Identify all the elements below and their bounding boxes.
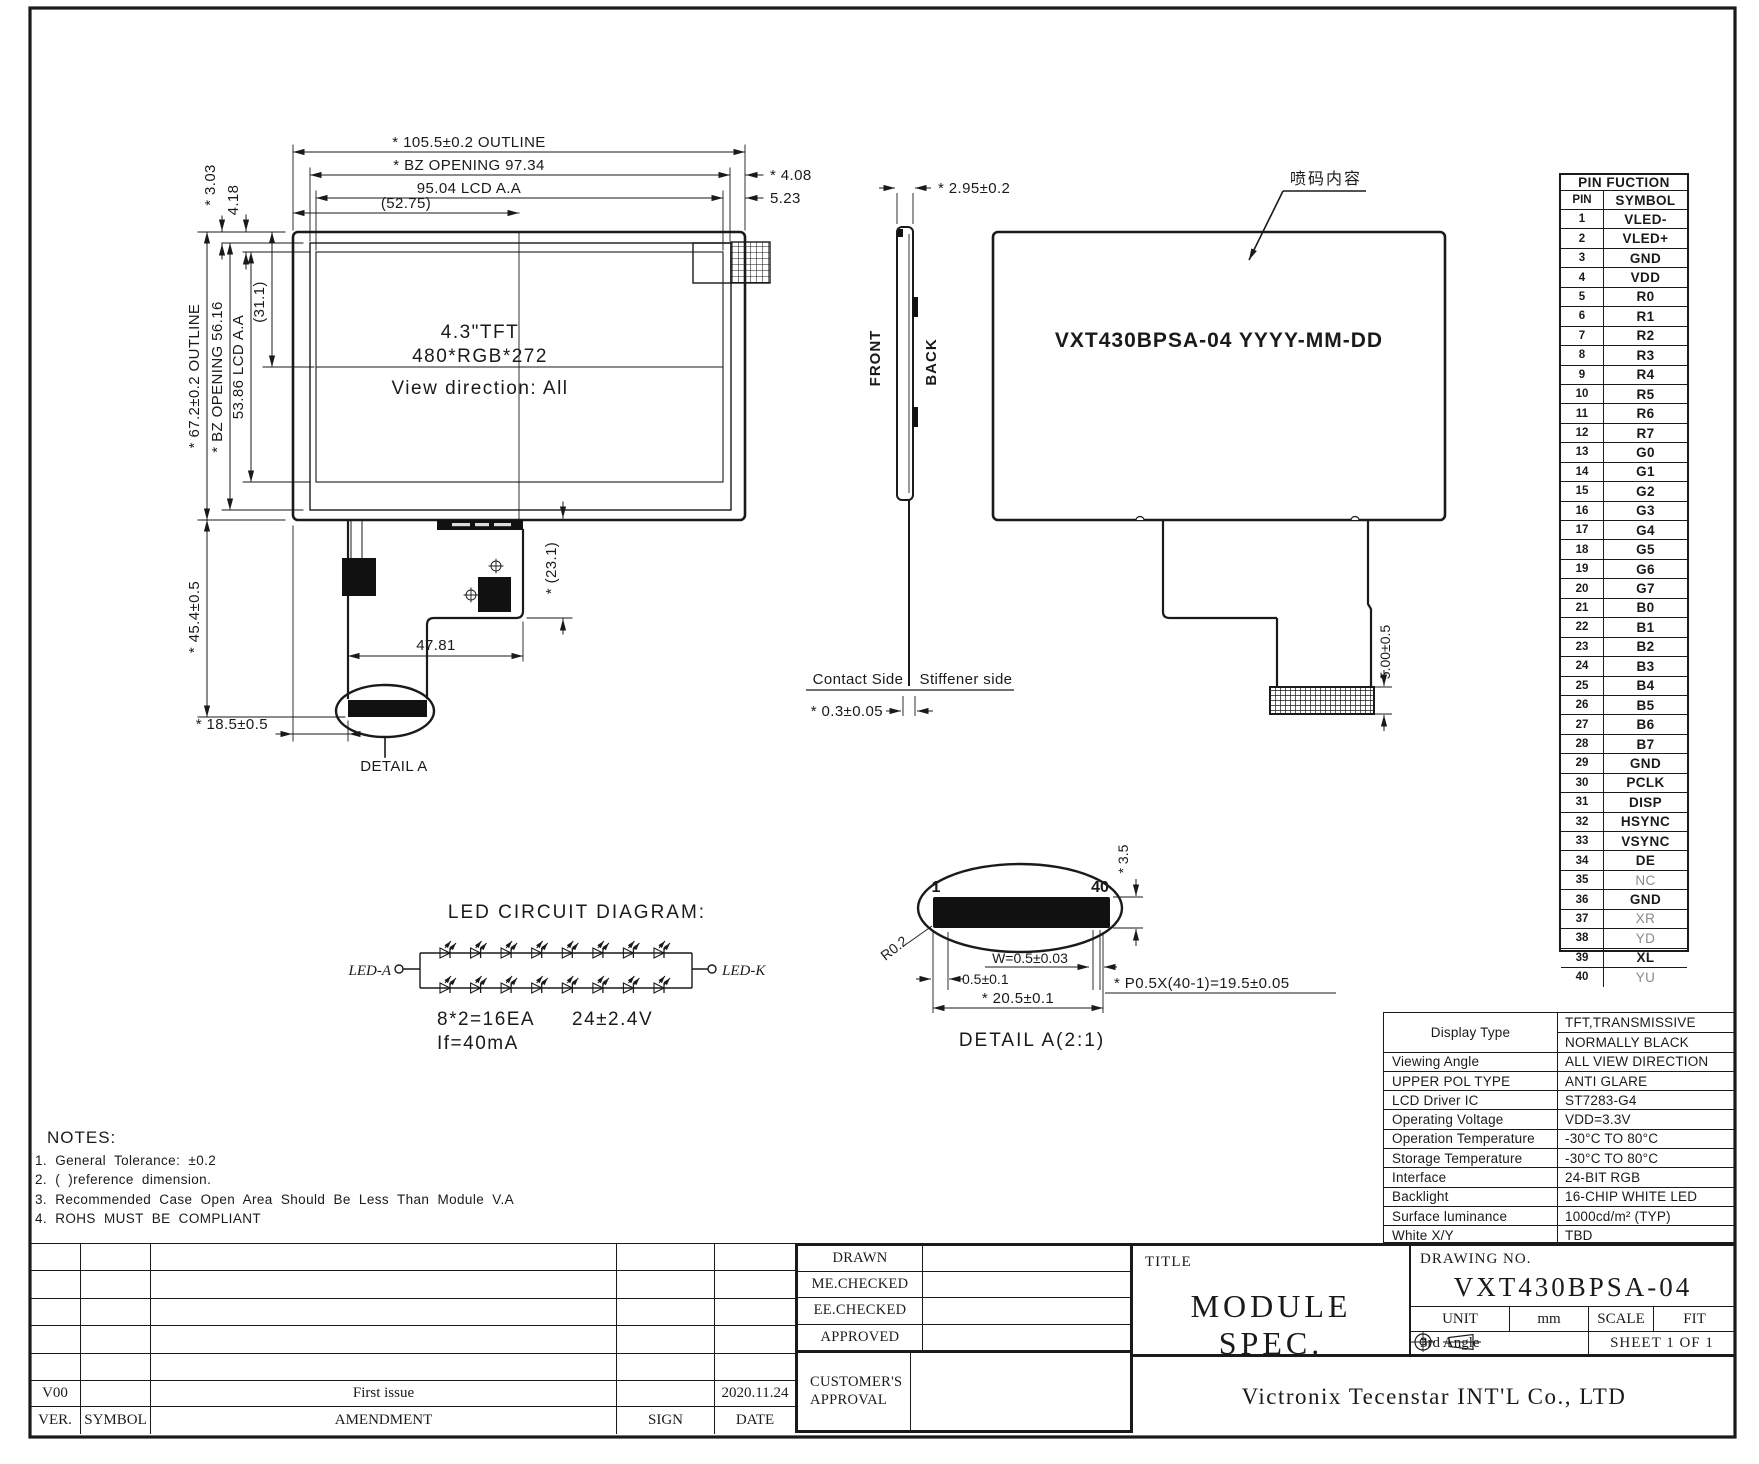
- company-name: Victronix Tecenstar INT'L Co., LTD: [1133, 1354, 1735, 1436]
- spec-values: 1000cd/m² (TYP): [1558, 1207, 1734, 1225]
- pin-row: 9R4: [1561, 366, 1687, 385]
- scale-label: SCALE: [1589, 1307, 1654, 1331]
- pin-row: 18G5: [1561, 540, 1687, 559]
- pin-row: 21B0: [1561, 599, 1687, 618]
- pin-row: 1VLED-: [1561, 210, 1687, 229]
- pin-row: 24B3: [1561, 657, 1687, 676]
- spec-value: ALL VIEW DIRECTION: [1558, 1053, 1734, 1071]
- pin-row: 6R1: [1561, 307, 1687, 326]
- corner-hatch-block: [731, 242, 770, 283]
- laser-marking-text: VXT430BPSA-04 YYYY-MM-DD: [1055, 329, 1383, 352]
- symbol-col-header: SYMBOL: [1604, 191, 1687, 209]
- notes-title: NOTES:: [47, 1128, 595, 1148]
- pin-number: 3: [1561, 249, 1604, 267]
- approval-row: DRAWN: [798, 1246, 1130, 1272]
- fpc-component-2: [478, 577, 511, 612]
- dim-right-523: 5.23: [770, 190, 801, 207]
- pin-number: 35: [1561, 871, 1604, 889]
- third-angle-projection-icon: [1411, 1332, 1483, 1352]
- pin-symbol: DISP: [1604, 793, 1687, 811]
- spec-values: 16-CHIP WHITE LED: [1558, 1188, 1734, 1206]
- projection-row: 3rd Angle SHEET 1 OF 1: [1409, 1332, 1735, 1354]
- dim-thickness: * 2.95±0.2: [938, 180, 1010, 197]
- rev-empty-row: [30, 1354, 795, 1381]
- rev-empty-row: [30, 1326, 795, 1353]
- pin-row: 11R6: [1561, 404, 1687, 423]
- pin-number: 16: [1561, 502, 1604, 520]
- pin-number: 39: [1561, 949, 1604, 967]
- pin-row: 3GND: [1561, 249, 1687, 268]
- dim-detail-total: * 20.5±0.1: [982, 990, 1054, 1007]
- spec-label: LCD Driver IC: [1384, 1091, 1558, 1109]
- pin-row: 26B5: [1561, 696, 1687, 715]
- marking-callout-label: 喷码内容: [1290, 170, 1362, 188]
- rev-cell: [81, 1244, 151, 1270]
- spec-values: ANTI GLARE: [1558, 1072, 1734, 1090]
- dim-fpc-height: * (23.1): [543, 542, 560, 594]
- pin-symbol: R2: [1604, 327, 1687, 345]
- notes: NOTES: 1. General Tolerance: ±0.22. ( )r…: [35, 1128, 595, 1226]
- side-bump-2: [912, 407, 918, 427]
- dim-top-418: 4.18: [225, 185, 242, 216]
- rev-cell: [617, 1381, 715, 1407]
- customer-approval-row: CUSTOMER'S APPROVAL: [798, 1351, 1130, 1430]
- pin-number: 21: [1561, 599, 1604, 617]
- spec-label: Viewing Angle: [1384, 1053, 1558, 1071]
- pin-symbol: G0: [1604, 443, 1687, 461]
- dim-center-offset: (52.75): [381, 195, 431, 212]
- approval-signature: [923, 1298, 1130, 1323]
- rev-header-row: VER.SYMBOLAMENDMENTSIGNDATE: [30, 1407, 795, 1434]
- pin-row: 23B2: [1561, 638, 1687, 657]
- pin-symbol: B2: [1604, 638, 1687, 656]
- projection-angle-cell: 3rd Angle: [1411, 1332, 1589, 1354]
- approval-signature: [923, 1325, 1130, 1350]
- pin-row: 2VLED+: [1561, 229, 1687, 248]
- spec-row: Viewing AngleALL VIEW DIRECTION: [1384, 1052, 1734, 1071]
- corner-window: [693, 243, 731, 283]
- spec-value: ANTI GLARE: [1558, 1072, 1734, 1090]
- spec-label: Operation Temperature: [1384, 1130, 1558, 1148]
- spec-row: Storage Temperature-30°C TO 80°C: [1384, 1148, 1734, 1167]
- fpc-component-1: [342, 558, 376, 596]
- pin-row: 5R0: [1561, 288, 1687, 307]
- led-circuit-title: LED CIRCUIT DIAGRAM:: [448, 902, 706, 923]
- pin-table-header: PIN SYMBOL: [1561, 191, 1687, 210]
- pin-row: 22B1: [1561, 618, 1687, 637]
- pin-number: 23: [1561, 638, 1604, 656]
- pin-number: 20: [1561, 579, 1604, 597]
- spec-row: LCD Driver ICST7283-G4: [1384, 1090, 1734, 1109]
- spec-label: White X/Y: [1384, 1226, 1558, 1244]
- front-view: 4.3"TFT 480*RGB*272 View direction: All …: [186, 134, 812, 775]
- spec-row: Operation Temperature-30°C TO 80°C: [1384, 1129, 1734, 1148]
- spec-value: VDD=3.3V: [1558, 1110, 1734, 1128]
- pin-row: 16G3: [1561, 502, 1687, 521]
- led-quantity-label: 8*2=16EA: [437, 1009, 535, 1030]
- pin-row: 40YU: [1561, 968, 1687, 986]
- pin-symbol: R5: [1604, 385, 1687, 403]
- pin-number: 7: [1561, 327, 1604, 345]
- title-cell: TITLE MODULE SPEC.: [1133, 1246, 1409, 1354]
- pin-symbol: G1: [1604, 463, 1687, 481]
- dim-detail-pad: 0.5±0.1: [962, 971, 1009, 987]
- side-profile: [897, 227, 913, 500]
- rev-cell: [715, 1299, 795, 1325]
- note-item: 4. ROHS MUST BE COMPLIANT: [35, 1211, 595, 1226]
- pin-row: 19G6: [1561, 560, 1687, 579]
- dim-bz-height: * BZ OPENING 56.16: [209, 301, 226, 452]
- pin-number: 18: [1561, 540, 1604, 558]
- spec-label: Surface luminance: [1384, 1207, 1558, 1225]
- rev-cell: [81, 1326, 151, 1352]
- pin-row: 38YD: [1561, 929, 1687, 948]
- rev-cell: [715, 1244, 795, 1270]
- contact-side-label: Contact Side: [813, 671, 904, 688]
- unit-scale-row: UNIT mm SCALE FIT: [1409, 1307, 1735, 1332]
- rev-cell: 2020.11.24: [715, 1381, 795, 1407]
- approval-label: DRAWN: [798, 1246, 923, 1271]
- pin-number: 34: [1561, 851, 1604, 869]
- pin-number: 8: [1561, 346, 1604, 364]
- pin-symbol: R0: [1604, 288, 1687, 306]
- rev-cell: SYMBOL: [81, 1407, 151, 1434]
- sheet-label: SHEET 1 OF 1: [1589, 1332, 1735, 1354]
- detail-a-view: 1 40 * 3.5 R0.2 W=0.5±0.03 0.5±0.1 * 20.…: [877, 844, 1336, 1051]
- rev-cell: [151, 1244, 617, 1270]
- pin-symbol: VSYNC: [1604, 832, 1687, 850]
- pin-row: 15G2: [1561, 482, 1687, 501]
- led-voltage-label: 24±2.4V: [572, 1009, 653, 1030]
- dim-bz-width: * BZ OPENING 97.34: [393, 157, 544, 174]
- pin-number: 28: [1561, 735, 1604, 753]
- pin-number: 40: [1561, 968, 1604, 986]
- rev-cell: [81, 1381, 151, 1407]
- pin-row: 12R7: [1561, 424, 1687, 443]
- pin-symbol: R6: [1604, 404, 1687, 422]
- pin-row: 10R5: [1561, 385, 1687, 404]
- pin-symbol: NC: [1604, 871, 1687, 889]
- approval-label: ME.CHECKED: [798, 1272, 923, 1297]
- pin-number: 33: [1561, 832, 1604, 850]
- spec-values: VDD=3.3V: [1558, 1110, 1734, 1128]
- pin-symbol: B5: [1604, 696, 1687, 714]
- pin-number: 5: [1561, 288, 1604, 306]
- dim-fpc-length: * 45.4±0.5: [186, 581, 203, 653]
- pin-row: 29GND: [1561, 754, 1687, 773]
- led-circuit-diagram: LED CIRCUIT DIAGRAM: LED-A LED-K 8*2=16E…: [348, 902, 767, 1054]
- front-side-label: FRONT: [867, 330, 884, 387]
- drawing-no-label: DRAWING NO.: [1420, 1251, 1531, 1268]
- led-anode-label: LED-A: [348, 963, 392, 979]
- spec-row: Display TypeTFT,TRANSMISSIVENORMALLY BLA…: [1384, 1013, 1734, 1052]
- pin-row: 25B4: [1561, 677, 1687, 696]
- dim-fpc-thickness: * 0.3±0.05: [811, 703, 883, 720]
- fpc-contact-bar: [348, 700, 427, 717]
- approval-label: EE.CHECKED: [798, 1298, 923, 1323]
- rev-data-row: V00First issue2020.11.24: [30, 1381, 795, 1408]
- stiffener-side-label: Stiffener side: [920, 671, 1013, 688]
- pin-symbol: R7: [1604, 424, 1687, 442]
- pin-symbol: G5: [1604, 540, 1687, 558]
- spec-label: UPPER POL TYPE: [1384, 1072, 1558, 1090]
- rev-cell: [715, 1271, 795, 1297]
- spec-value: 16-CHIP WHITE LED: [1558, 1188, 1734, 1206]
- spec-values: ST7283-G4: [1558, 1091, 1734, 1109]
- pin-number: 37: [1561, 910, 1604, 928]
- pin-number: 1: [1561, 210, 1604, 228]
- revision-table: V00First issue2020.11.24VER.SYMBOLAMENDM…: [30, 1243, 795, 1434]
- title-block-right: TITLE MODULE SPEC. DRAWING NO. VXT430BPS…: [1133, 1243, 1735, 1433]
- pin-row: 35NC: [1561, 871, 1687, 890]
- side-view: * 2.95±0.2 FRONT BACK Contact Side Stiff…: [806, 180, 1014, 720]
- pin-number: 4: [1561, 268, 1604, 286]
- note-item: 2. ( )reference dimension.: [35, 1172, 595, 1187]
- pin-row: 4VDD: [1561, 268, 1687, 287]
- spec-values: -30°C TO 80°C: [1558, 1130, 1734, 1148]
- pin-row: 37XR: [1561, 910, 1687, 929]
- pin-symbol: GND: [1604, 890, 1687, 908]
- customer-approval-signature: [911, 1353, 1130, 1430]
- rev-cell: [617, 1354, 715, 1380]
- spec-label: Display Type: [1384, 1013, 1558, 1052]
- pin-number: 24: [1561, 657, 1604, 675]
- pin-symbol: VDD: [1604, 268, 1687, 286]
- pin-number: 31: [1561, 793, 1604, 811]
- pin-row: 31DISP: [1561, 793, 1687, 812]
- pin-symbol: B4: [1604, 677, 1687, 695]
- dim-aa-height: 53.86 LCD A.A: [230, 315, 247, 419]
- rev-cell: [617, 1326, 715, 1352]
- spec-label: Operating Voltage: [1384, 1110, 1558, 1128]
- pin-row: 7R2: [1561, 327, 1687, 346]
- rev-cell: DATE: [715, 1407, 795, 1434]
- pin-col-header: PIN: [1561, 191, 1604, 209]
- spec-values: TBD: [1558, 1226, 1734, 1244]
- dim-detail-pitch: * P0.5X(40-1)=19.5±0.05: [1114, 975, 1289, 992]
- pin-number: 11: [1561, 404, 1604, 422]
- pin-function-table: PIN FUCTION PIN SYMBOL 1VLED-2VLED+3GND4…: [1559, 173, 1689, 952]
- pin-rows: 1VLED-2VLED+3GND4VDD5R06R17R28R39R410R51…: [1561, 210, 1687, 987]
- approval-block: DRAWNME.CHECKEDEE.CHECKEDAPPROVED CUSTOM…: [795, 1243, 1133, 1433]
- pin-symbol: YU: [1604, 968, 1687, 986]
- dim-outline-height: * 67.2±0.2 OUTLINE: [186, 304, 203, 449]
- pin-row: 39XL: [1561, 949, 1687, 968]
- spec-row: Operating VoltageVDD=3.3V: [1384, 1109, 1734, 1128]
- pin-symbol: G6: [1604, 560, 1687, 578]
- back-connector-stiffener: [1270, 687, 1374, 714]
- pin-number: 9: [1561, 366, 1604, 384]
- title-label: TITLE: [1145, 1254, 1192, 1271]
- notes-lines: 1. General Tolerance: ±0.22. ( )referenc…: [35, 1153, 595, 1227]
- rev-cell: AMENDMENT: [151, 1407, 617, 1434]
- unit-label: UNIT: [1411, 1307, 1510, 1331]
- dim-connector-height: 5.00±0.5: [1377, 625, 1393, 680]
- rev-cell: [617, 1244, 715, 1270]
- pin-row: 34DE: [1561, 851, 1687, 870]
- note-item: 1. General Tolerance: ±0.2: [35, 1153, 595, 1168]
- rev-cell: [81, 1271, 151, 1297]
- detail-contact-bar: [933, 897, 1110, 928]
- pin-row: 32HSYNC: [1561, 813, 1687, 832]
- pin-number: 10: [1561, 385, 1604, 403]
- pin-number: 2: [1561, 229, 1604, 247]
- engineering-drawing-sheet: 4.3"TFT 480*RGB*272 View direction: All …: [0, 0, 1759, 1464]
- rev-cell: [617, 1271, 715, 1297]
- approval-label: APPROVED: [798, 1325, 923, 1350]
- approval-signature: [923, 1272, 1130, 1297]
- rev-cell: [151, 1326, 617, 1352]
- rev-cell: [617, 1299, 715, 1325]
- rev-cell: [715, 1326, 795, 1352]
- rev-cell: [151, 1354, 617, 1380]
- pin-symbol: XR: [1604, 910, 1687, 928]
- rev-cell: [81, 1354, 151, 1380]
- pin-symbol: G4: [1604, 521, 1687, 539]
- spec-label: Interface: [1384, 1168, 1558, 1186]
- pin-number: 32: [1561, 813, 1604, 831]
- spec-values: TFT,TRANSMISSIVENORMALLY BLACK: [1558, 1013, 1734, 1052]
- pin-number: 17: [1561, 521, 1604, 539]
- pin-symbol: PCLK: [1604, 774, 1687, 792]
- unit-value: mm: [1510, 1307, 1589, 1331]
- pin-symbol: B7: [1604, 735, 1687, 753]
- pin-number: 38: [1561, 929, 1604, 947]
- title-block: V00First issue2020.11.24VER.SYMBOLAMENDM…: [30, 1243, 1735, 1434]
- bezel-opening: [310, 243, 731, 510]
- rev-cell: VER.: [30, 1407, 81, 1434]
- pin-symbol: XL: [1604, 949, 1687, 967]
- dim-aa-width: 95.04 LCD A.A: [417, 180, 521, 197]
- pin-symbol: G7: [1604, 579, 1687, 597]
- back-outline: [993, 232, 1445, 520]
- pin-symbol: YD: [1604, 929, 1687, 947]
- detail-a-title: DETAIL A(2:1): [959, 1030, 1105, 1051]
- pin-symbol: R4: [1604, 366, 1687, 384]
- back-view: VXT430BPSA-04 YYYY-MM-DD 喷码内容 5.00±0.5: [993, 170, 1445, 731]
- view-direction-label: View direction: All: [391, 378, 568, 399]
- pin-symbol: R3: [1604, 346, 1687, 364]
- rev-empty-row: [30, 1244, 795, 1271]
- detail-radius-label: R0.2: [877, 933, 910, 964]
- pin-symbol: G2: [1604, 482, 1687, 500]
- spec-value: 24-BIT RGB: [1558, 1168, 1734, 1186]
- dim-detail-height: * 3.5: [1115, 844, 1131, 873]
- pin-symbol: GND: [1604, 249, 1687, 267]
- pin-symbol: G3: [1604, 502, 1687, 520]
- spec-row: Backlight16-CHIP WHITE LED: [1384, 1187, 1734, 1206]
- pin-symbol: HSYNC: [1604, 813, 1687, 831]
- pin-number: 19: [1561, 560, 1604, 578]
- spec-row: UPPER POL TYPEANTI GLARE: [1384, 1071, 1734, 1090]
- dim-center-v: (31.1): [251, 281, 268, 323]
- pin-row: 13G0: [1561, 443, 1687, 462]
- dim-top-303: * 3.03: [202, 164, 219, 206]
- drawing-no-cell: DRAWING NO. VXT430BPSA-04: [1409, 1246, 1735, 1307]
- panel-resolution-label: 480*RGB*272: [412, 346, 548, 367]
- spec-value: TBD: [1558, 1226, 1734, 1244]
- detail-pin1-label: 1: [932, 879, 941, 896]
- pin-symbol: DE: [1604, 851, 1687, 869]
- pin-row: 20G7: [1561, 579, 1687, 598]
- spec-value: NORMALLY BLACK: [1558, 1032, 1734, 1052]
- detail-pin40-label: 40: [1091, 879, 1109, 896]
- pin-row: 8R3: [1561, 346, 1687, 365]
- approval-row: ME.CHECKED: [798, 1272, 1130, 1298]
- spec-values: 24-BIT RGB: [1558, 1168, 1734, 1186]
- pin-row: 27B6: [1561, 715, 1687, 734]
- approval-row: EE.CHECKED: [798, 1298, 1130, 1324]
- pin-number: 36: [1561, 890, 1604, 908]
- pin-symbol: VLED+: [1604, 229, 1687, 247]
- pin-symbol: B3: [1604, 657, 1687, 675]
- detail-a-label: DETAIL A: [360, 758, 427, 775]
- side-bump-1: [912, 297, 918, 317]
- spec-value: -30°C TO 80°C: [1558, 1130, 1734, 1148]
- rev-cell: [30, 1244, 81, 1270]
- dim-fpc-offset: * 18.5±0.5: [196, 716, 268, 733]
- panel-size-label: 4.3"TFT: [441, 322, 519, 343]
- rev-cell: [151, 1299, 617, 1325]
- pin-row: 36GND: [1561, 890, 1687, 909]
- pin-number: 29: [1561, 754, 1604, 772]
- pin-symbol: GND: [1604, 754, 1687, 772]
- led-current-label: If=40mA: [437, 1033, 519, 1054]
- fit-value: FIT: [1654, 1307, 1735, 1331]
- rev-cell: V00: [30, 1381, 81, 1407]
- pin-number: 25: [1561, 677, 1604, 695]
- pin-row: 14G1: [1561, 463, 1687, 482]
- pin-number: 22: [1561, 618, 1604, 636]
- rev-cell: SIGN: [617, 1407, 715, 1434]
- pin-symbol: VLED-: [1604, 210, 1687, 228]
- callout-leader: [1249, 191, 1283, 260]
- rev-cell: First issue: [151, 1381, 617, 1407]
- rev-cell: [30, 1299, 81, 1325]
- spec-values: ALL VIEW DIRECTION: [1558, 1053, 1734, 1071]
- spec-label: Backlight: [1384, 1188, 1558, 1206]
- pin-symbol: B1: [1604, 618, 1687, 636]
- rev-cell: [30, 1271, 81, 1297]
- dim-outline-width: * 105.5±0.2 OUTLINE: [392, 134, 545, 151]
- pin-number: 14: [1561, 463, 1604, 481]
- led-cathode-label: LED-K: [721, 963, 766, 979]
- pin-row: 33VSYNC: [1561, 832, 1687, 851]
- pin-symbol: B6: [1604, 715, 1687, 733]
- pin-number: 12: [1561, 424, 1604, 442]
- spec-value: -30°C TO 80°C: [1558, 1149, 1734, 1167]
- spec-row: Surface luminance1000cd/m² (TYP): [1384, 1206, 1734, 1225]
- rev-cell: [30, 1354, 81, 1380]
- approval-row: APPROVED: [798, 1325, 1130, 1351]
- pin-row: 28B7: [1561, 735, 1687, 754]
- pin-number: 13: [1561, 443, 1604, 461]
- spec-value: ST7283-G4: [1558, 1091, 1734, 1109]
- dim-right-408: * 4.08: [770, 167, 812, 184]
- rev-cell: [30, 1326, 81, 1352]
- customer-approval-label: CUSTOMER'S APPROVAL: [798, 1353, 911, 1430]
- pin-number: 30: [1561, 774, 1604, 792]
- drawing-no-value: VXT430BPSA-04: [1411, 1272, 1735, 1303]
- rev-cell: [151, 1271, 617, 1297]
- pin-number: 15: [1561, 482, 1604, 500]
- pin-symbol: B0: [1604, 599, 1687, 617]
- spec-value: TFT,TRANSMISSIVE: [1558, 1013, 1734, 1032]
- note-item: 3. Recommended Case Open Area Should Be …: [35, 1192, 595, 1207]
- pin-number: 6: [1561, 307, 1604, 325]
- spec-values: -30°C TO 80°C: [1558, 1149, 1734, 1167]
- pin-number: 26: [1561, 696, 1604, 714]
